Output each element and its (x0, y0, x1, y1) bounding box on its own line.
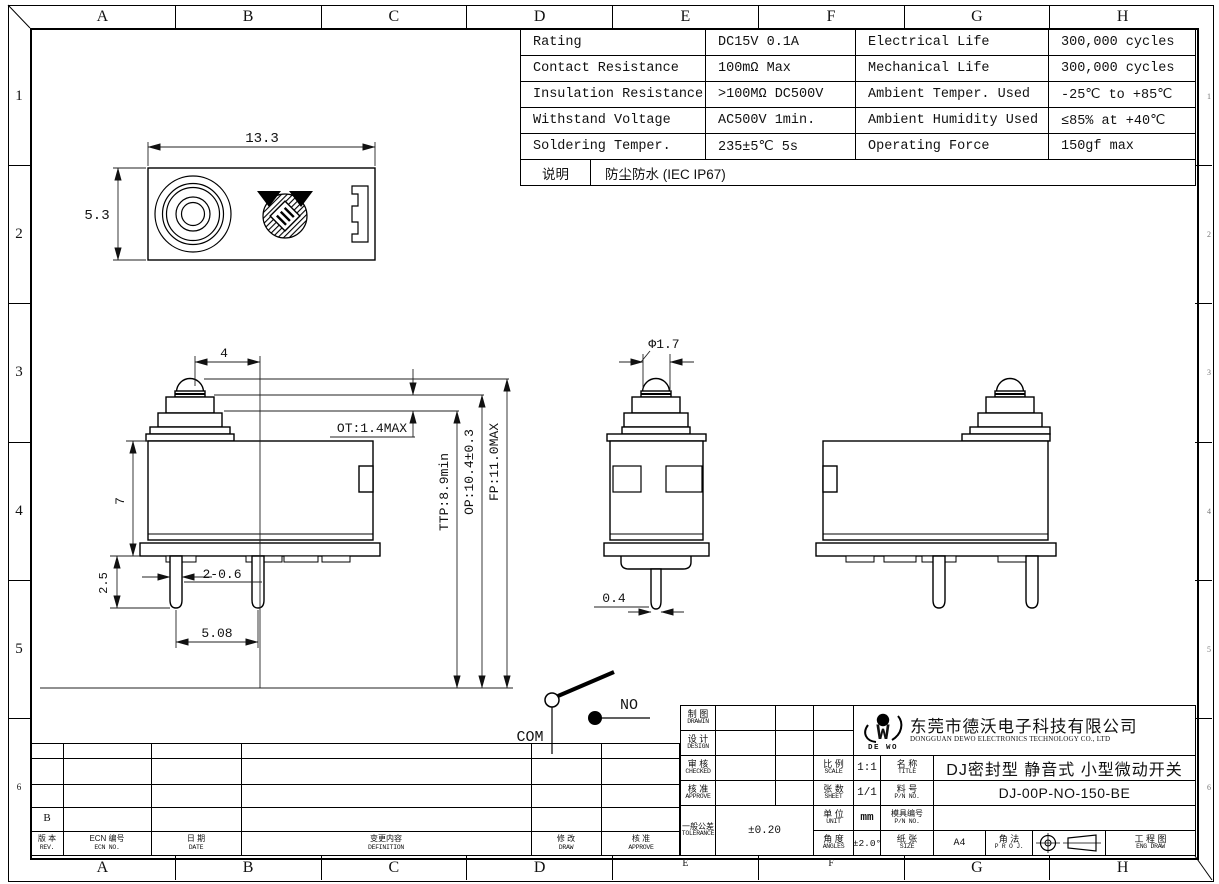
zone-row-label: 3 (8, 304, 30, 442)
zone-col-label: E (613, 856, 759, 880)
zone-columns-top: A B C D E F G H (30, 5, 1195, 28)
empty-cell (813, 705, 854, 731)
revision-table: B 版 本 REV. ECN 编号 ECN NO. 日 期 DATE 变更内容 … (30, 743, 680, 856)
ecn-header-zh: ECN 编号 (89, 835, 124, 844)
checked-date-cell (775, 755, 814, 781)
zone-row-label: 5 (1195, 581, 1212, 719)
spec-value: ≤85% at +40℃ (1049, 108, 1196, 134)
note-text: 防尘防水 (IEC IP67) (591, 160, 1196, 186)
company-name-en: DONGGUAN DEWO ELECTRONICS TECHNOLOGY CO.… (910, 736, 1138, 744)
spec-value: 235±5℃ 5s (706, 134, 856, 160)
approved-date-cell (775, 780, 814, 806)
table-line (241, 744, 242, 855)
drawn-signature-cell (715, 705, 776, 731)
approve-header: 核 准 APPROVE (628, 835, 653, 851)
company-names: 东莞市德沃电子科技有限公司 DONGGUAN DEWO ELECTRONICS … (910, 718, 1138, 744)
projection-label-en: P R O J. (995, 844, 1024, 851)
tolerance-value: ±0.20 (715, 805, 814, 856)
zone-row-label: 3 (1195, 304, 1212, 442)
empty-cell (813, 730, 854, 756)
spec-label: Ambient Temper. Used (856, 82, 1049, 108)
design-label-en: DESIGN (687, 744, 709, 751)
angles-label: 角 度 ANGLES (813, 830, 854, 856)
spec-label: Operating Force (856, 134, 1049, 160)
spec-label: Contact Resistance (521, 56, 706, 82)
size-value: A4 (933, 830, 986, 856)
eng-draw-label-en: ENG DRAW (1136, 844, 1165, 851)
zone-rows-right: 1 2 3 4 5 6 (1195, 28, 1212, 856)
mold-no-label: 模具编号 P/N NO. (880, 805, 934, 831)
eng-draw-label: 工 程 图 ENG DRAW (1105, 830, 1196, 856)
zone-col-label: H (1050, 856, 1195, 880)
rev-header-en: REV. (40, 844, 54, 851)
engineering-drawing-page: 13.3 5.3 (0, 0, 1219, 884)
zone-row-label: 6 (8, 719, 30, 856)
tolerance-label: 一般公差 TOLERANCE (680, 805, 716, 856)
zone-row-label: 6 (1195, 719, 1212, 856)
rev-header-zh: 版 本 (38, 835, 56, 844)
size-label-en: SIZE (900, 844, 914, 851)
spec-value: 300,000 cycles (1049, 30, 1196, 56)
note-row: 说明 防尘防水 (IEC IP67) (520, 160, 1196, 186)
modify-header: 修 改 DRAW (557, 835, 575, 851)
title-label-en: TITLE (898, 769, 916, 776)
ecn-header-en: ECN NO. (94, 844, 119, 851)
spec-value: AC500V 1min. (706, 108, 856, 134)
zone-columns-bottom: A B C D E F G H (30, 856, 1195, 880)
ecn-no-header: ECN 编号 ECN NO. (89, 835, 124, 851)
definition-header: 变更内容 DEFINITION (368, 835, 404, 851)
scale-label-en: SCALE (824, 769, 842, 776)
spec-value: -25℃ to +85℃ (1049, 82, 1196, 108)
svg-text:DE WO: DE WO (868, 744, 898, 751)
date-header: 日 期 DATE (187, 835, 205, 851)
spec-table: Rating DC15V 0.1A Electrical Life 300,00… (520, 30, 1196, 160)
modify-header-zh: 修 改 (557, 835, 575, 844)
drawn-date-cell (775, 705, 814, 731)
spec-label: Insulation Resistance (521, 82, 706, 108)
angles-value: ±2.0° (853, 830, 881, 856)
approved-label: 核 准 APPROVE (680, 780, 716, 806)
zone-col-label: A (30, 856, 176, 880)
table-line (31, 784, 679, 785)
projection-symbol-cell (1032, 830, 1106, 856)
checked-label: 审 核 CHECKED (680, 755, 716, 781)
rev-header: 版 本 REV. (38, 835, 56, 851)
revision-letter: B (43, 812, 50, 824)
zone-col-label: E (613, 5, 759, 28)
size-label: 纸 张 SIZE (880, 830, 934, 856)
checked-label-en: CHECKED (685, 769, 710, 776)
angles-label-en: ANGLES (823, 844, 845, 851)
mold-no-label-en: P/N NO. (894, 819, 919, 826)
zone-col-label: C (322, 856, 468, 880)
spec-value: DC15V 0.1A (706, 30, 856, 56)
date-header-en: DATE (189, 844, 203, 851)
date-header-zh: 日 期 (187, 835, 205, 844)
zone-rows-left: 1 2 3 4 5 6 (8, 28, 30, 856)
zone-row-label: 5 (8, 581, 30, 719)
spec-label: Mechanical Life (856, 56, 1049, 82)
company-block: W DE WO 东莞市德沃电子科技有限公司 DONGGUAN DEWO ELEC… (853, 705, 1196, 756)
projection-label: 角 法 P R O J. (985, 830, 1033, 856)
sheet-value: 1/1 (853, 780, 881, 806)
zone-row-label: 2 (8, 166, 30, 304)
zone-col-label: B (176, 5, 322, 28)
table-line (531, 744, 532, 855)
table-line (31, 831, 679, 832)
drawn-label: 制 图 DRAWIN (680, 705, 716, 731)
zone-col-label: H (1050, 5, 1195, 28)
company-name-zh: 东莞市德沃电子科技有限公司 (910, 718, 1138, 736)
svg-text:W: W (876, 721, 890, 746)
drawn-label-en: DRAWIN (687, 719, 709, 726)
spec-label: Ambient Humidity Used (856, 108, 1049, 134)
table-line (151, 744, 152, 855)
spec-value: >100MΩ DC500V (706, 82, 856, 108)
zone-col-label: G (905, 5, 1051, 28)
zone-col-label: G (905, 856, 1051, 880)
scale-value: 1:1 (853, 755, 881, 781)
modify-header-en: DRAW (559, 844, 573, 851)
spec-value: 300,000 cycles (1049, 56, 1196, 82)
design-date-cell (775, 730, 814, 756)
table-line (31, 758, 679, 759)
table-line (63, 744, 64, 855)
drawing-title-value: DJ密封型 静音式 小型微动开关 (933, 755, 1196, 781)
zone-col-label: B (176, 856, 322, 880)
approved-signature-cell (715, 780, 776, 806)
part-no-label-en: P/N NO. (894, 794, 919, 801)
zone-col-label: F (759, 856, 905, 880)
part-no-value: DJ-00P-NO-150-BE (933, 780, 1196, 806)
spec-label: Withstand Voltage (521, 108, 706, 134)
unit-value: mm (853, 805, 881, 831)
mold-no-value (933, 805, 1196, 831)
zone-col-label: C (322, 5, 468, 28)
zone-row-label: 2 (1195, 166, 1212, 304)
zone-row-label: 1 (8, 28, 30, 166)
definition-header-en: DEFINITION (368, 844, 404, 851)
spec-value: 100mΩ Max (706, 56, 856, 82)
spec-label: Rating (521, 30, 706, 56)
spec-label: Electrical Life (856, 30, 1049, 56)
design-signature-cell (715, 730, 776, 756)
unit-label: 单 位 UNIT (813, 805, 854, 831)
approve-header-zh: 核 准 (632, 835, 650, 844)
zone-col-label: A (30, 5, 176, 28)
table-line (31, 807, 679, 808)
zone-col-label: D (467, 856, 613, 880)
spec-value: 150gf max (1049, 134, 1196, 160)
table-line (601, 744, 602, 855)
part-no-label: 料 号 P/N NO. (880, 780, 934, 806)
tolerance-label-en: TOLERANCE (682, 831, 714, 838)
spec-label: Soldering Temper. (521, 134, 706, 160)
scale-label: 比 例 SCALE (813, 755, 854, 781)
definition-header-zh: 变更内容 (370, 835, 402, 844)
third-angle-projection-icon (1034, 831, 1104, 855)
title-label: 名 称 TITLE (880, 755, 934, 781)
dewo-logo-icon: W DE WO (860, 711, 906, 751)
approved-label-en: APPROVE (685, 794, 710, 801)
note-label: 说明 (521, 160, 591, 186)
sheet-label: 张 数 SHEET (813, 780, 854, 806)
sheet-label-en: SHEET (824, 794, 842, 801)
zone-row-label: 4 (8, 443, 30, 581)
zone-row-label: 1 (1195, 28, 1212, 166)
unit-label-en: UNIT (826, 819, 840, 826)
checked-signature-cell (715, 755, 776, 781)
zone-col-label: D (467, 5, 613, 28)
zone-row-label: 4 (1195, 443, 1212, 581)
design-label: 设 计 DESIGN (680, 730, 716, 756)
approve-header-en: APPROVE (628, 844, 653, 851)
zone-col-label: F (759, 5, 905, 28)
